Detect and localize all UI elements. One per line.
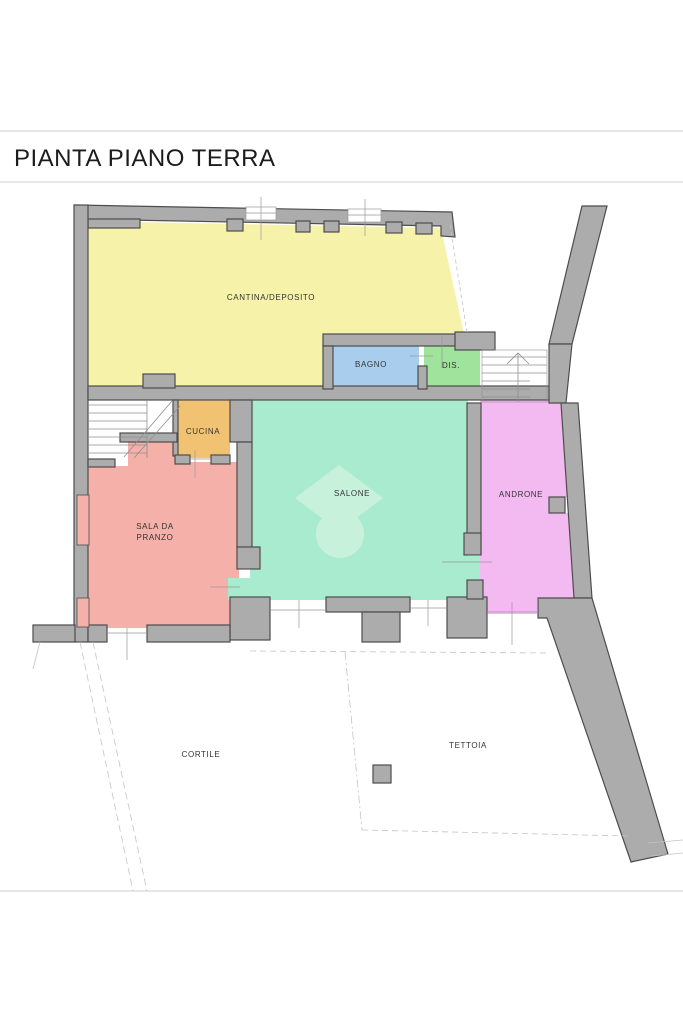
cortile-path-line (93, 642, 147, 891)
room-label-sala-da-pranzo: PRANZO (137, 533, 174, 542)
floor-plan-page: PIANTA PIANO TERRA (0, 0, 683, 1024)
tettoia-pillar (373, 765, 391, 783)
wall-exterior-left-stub (33, 625, 75, 642)
room-fills (85, 221, 575, 628)
room-label-salone: SALONE (334, 489, 370, 498)
room-label-sala-da-pranzo: SALA DA (136, 522, 174, 531)
wall-right-slant-lower (538, 598, 668, 862)
page-title: PIANTA PIANO TERRA (14, 145, 276, 172)
cortile-path-line (80, 642, 133, 891)
wall-left (74, 205, 88, 642)
window-opening (348, 209, 381, 222)
room-label-tettoia: TETTOIA (449, 741, 487, 750)
room-label-androne: ANDRONE (499, 490, 543, 499)
room-label-bagno: BAGNO (355, 360, 387, 369)
room-label-cortile: CORTILE (182, 750, 221, 759)
room-label-cucina: CUCINA (186, 427, 220, 436)
room-label-dis: DIS. (442, 361, 460, 370)
room-label-cantina: CANTINA/DEPOSITO (227, 293, 315, 302)
floor-plan-svg: PIANTA PIANO TERRA (0, 0, 683, 1024)
wall-right-slant-upper (549, 206, 607, 344)
